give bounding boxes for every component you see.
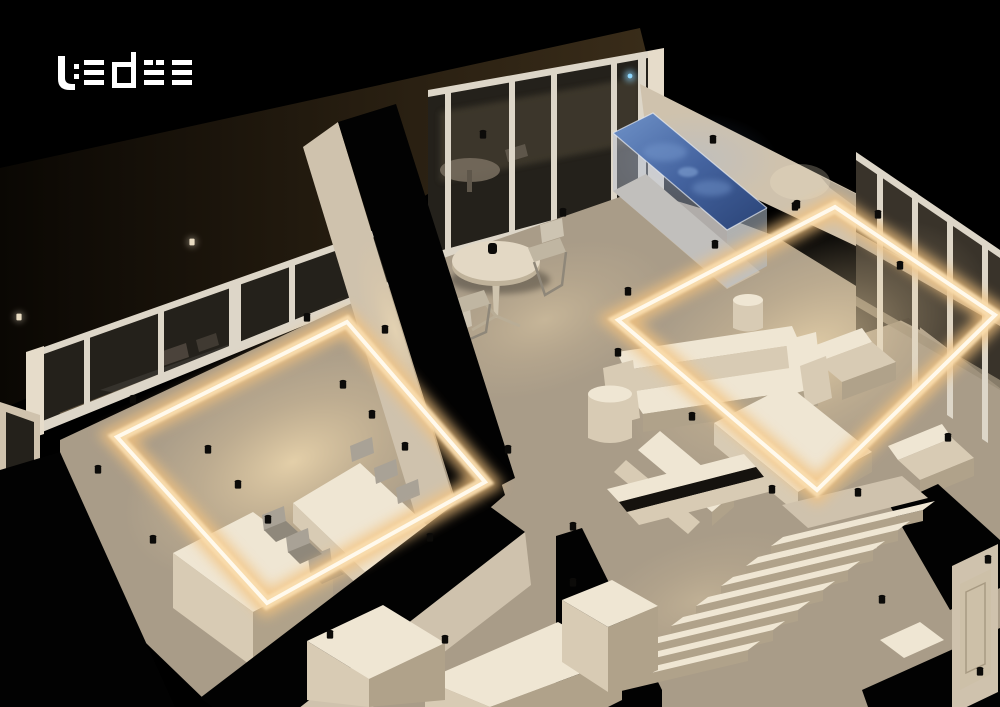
spotlight-icon xyxy=(369,410,376,419)
spotlight-icon xyxy=(710,135,717,144)
spotlight-icon xyxy=(985,555,992,564)
water-highlight xyxy=(678,167,698,177)
spotlight-icon xyxy=(712,240,719,249)
spotlight-icon xyxy=(304,313,311,322)
window-mullion xyxy=(158,310,164,376)
logo-letter-e xyxy=(172,60,192,85)
glass-mullion xyxy=(445,91,451,251)
render-canvas: 3D apartment cutaway lighting render xyxy=(0,0,1000,707)
spotlight-icon xyxy=(327,630,334,639)
glass-mullion xyxy=(551,73,557,222)
spotlight-icon xyxy=(769,485,776,494)
spotlight-icon xyxy=(794,200,801,209)
spotlight-icon xyxy=(879,595,886,604)
spotlight-icon xyxy=(560,208,567,217)
spotlight-icon xyxy=(95,465,102,474)
spotlight-icon xyxy=(442,635,449,644)
spotlight-icon xyxy=(480,130,487,139)
downlight-icon xyxy=(186,236,198,248)
spotlight-icon xyxy=(427,533,434,542)
apartment-render: 3D apartment cutaway lighting render xyxy=(0,0,1000,707)
spotlight-icon xyxy=(625,287,632,296)
spotlight-icon xyxy=(897,261,904,270)
spotlight-icon xyxy=(570,522,577,531)
side-table-cylinder xyxy=(588,386,632,444)
door-right: door xyxy=(952,544,998,707)
spotlight-icon xyxy=(875,210,882,219)
downlight-icon xyxy=(13,311,25,323)
spotlight-icon xyxy=(130,395,137,404)
logo-colon-dot xyxy=(74,74,79,79)
spotlight-icon xyxy=(205,445,212,454)
water-highlight xyxy=(692,180,732,196)
logo-letter-e xyxy=(144,60,164,85)
spotlight-icon xyxy=(265,515,272,524)
spotlight-icon xyxy=(235,480,242,489)
logo-letter-l xyxy=(58,56,75,90)
spotlight-icon xyxy=(340,380,347,389)
logo-letter-d xyxy=(112,52,136,88)
spotlight-icon xyxy=(689,412,696,421)
window-mullion xyxy=(84,336,90,406)
brand-logo: ledee xyxy=(58,52,192,90)
window-mullion xyxy=(289,263,295,323)
spotlight-icon xyxy=(977,667,984,676)
blue-accent-light: blue accent light xyxy=(624,70,636,82)
spotlight-icon xyxy=(570,578,577,587)
spotlight-icon xyxy=(615,348,622,357)
spotlight-icon xyxy=(945,433,952,442)
logo-letter-e xyxy=(84,60,104,85)
wall-light-spot xyxy=(770,164,830,200)
table-lamp-icon xyxy=(488,243,497,254)
spotlight-icon xyxy=(402,442,409,451)
water-highlight xyxy=(643,143,687,161)
spotlight-icon xyxy=(505,445,512,454)
spotlight-icon xyxy=(855,488,862,497)
spotlight-icon xyxy=(382,325,389,334)
spotlight-icon xyxy=(150,535,157,544)
side-table-cylinder xyxy=(733,294,763,332)
glass-mullion xyxy=(509,80,515,233)
logo-colon-dot xyxy=(74,64,79,69)
window-mullion xyxy=(229,282,241,350)
